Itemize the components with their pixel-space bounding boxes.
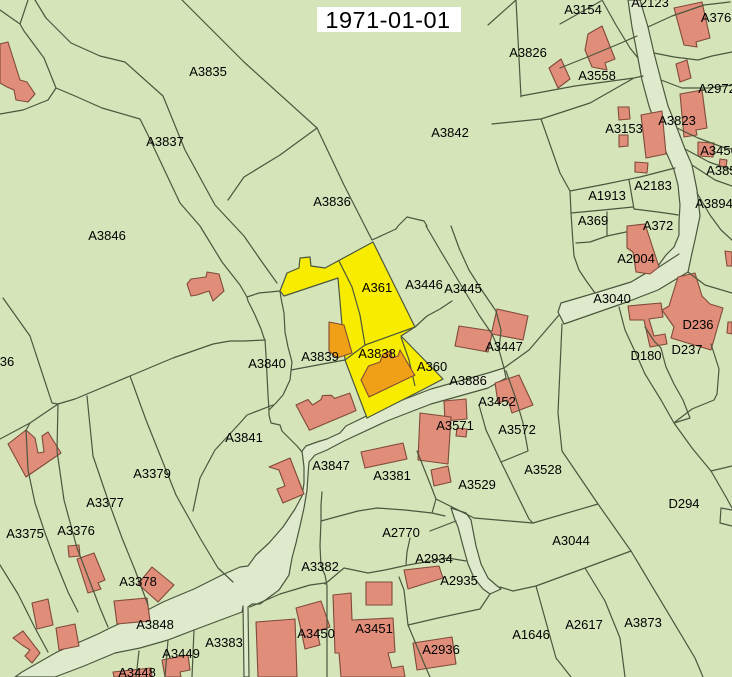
- svg-text:A3044: A3044: [552, 533, 590, 548]
- svg-text:A2936: A2936: [422, 642, 460, 657]
- svg-text:A3377: A3377: [86, 495, 124, 510]
- svg-text:A2123: A2123: [631, 0, 669, 10]
- svg-text:A3571: A3571: [436, 418, 474, 433]
- svg-text:A376: A376: [701, 10, 731, 25]
- svg-text:A3894: A3894: [695, 196, 732, 211]
- svg-text:1971-01-01: 1971-01-01: [325, 7, 450, 33]
- svg-text:A2934: A2934: [415, 551, 453, 566]
- svg-text:A2935: A2935: [440, 573, 478, 588]
- svg-text:A3558: A3558: [578, 68, 616, 83]
- svg-text:A3840: A3840: [248, 356, 286, 371]
- svg-text:D294: D294: [668, 496, 699, 511]
- svg-text:A3040: A3040: [593, 291, 631, 306]
- svg-text:A369: A369: [578, 213, 608, 228]
- svg-text:A3452: A3452: [478, 394, 516, 409]
- svg-text:A3841: A3841: [225, 430, 263, 445]
- svg-text:A3823: A3823: [658, 113, 696, 128]
- svg-text:A3835: A3835: [189, 64, 227, 79]
- svg-text:A3381: A3381: [373, 468, 411, 483]
- svg-text:A372: A372: [643, 218, 673, 233]
- svg-text:A360: A360: [417, 359, 447, 374]
- svg-text:D236: D236: [682, 317, 713, 332]
- svg-text:A3382: A3382: [301, 559, 339, 574]
- svg-text:A3842: A3842: [431, 125, 469, 140]
- svg-text:A3445: A3445: [444, 281, 482, 296]
- svg-text:A3383: A3383: [205, 635, 243, 650]
- svg-text:A3873: A3873: [624, 615, 662, 630]
- svg-text:A3376: A3376: [57, 523, 95, 538]
- svg-text:A1646: A1646: [512, 627, 550, 642]
- svg-text:A3836: A3836: [313, 194, 351, 209]
- svg-text:A3838: A3838: [358, 346, 396, 361]
- svg-text:A3446: A3446: [405, 277, 443, 292]
- svg-text:A2972: A2972: [698, 81, 732, 96]
- svg-text:A3847: A3847: [312, 458, 350, 473]
- svg-text:A2183: A2183: [634, 178, 672, 193]
- svg-text:A2004: A2004: [617, 251, 655, 266]
- svg-text:A3379: A3379: [133, 466, 171, 481]
- svg-text:A3154: A3154: [564, 2, 602, 17]
- svg-text:D237: D237: [671, 342, 702, 357]
- svg-text:A3858: A3858: [706, 163, 732, 178]
- svg-text:A2617: A2617: [565, 617, 603, 632]
- svg-text:A3449: A3449: [162, 646, 200, 661]
- svg-text:A3451: A3451: [355, 621, 393, 636]
- svg-text:A3375: A3375: [6, 526, 44, 541]
- svg-text:A3447: A3447: [485, 339, 523, 354]
- svg-text:A3826: A3826: [509, 45, 547, 60]
- svg-text:A1913: A1913: [588, 188, 626, 203]
- svg-text:A361: A361: [362, 280, 392, 295]
- svg-text:A2770: A2770: [382, 525, 420, 540]
- svg-text:A3846: A3846: [88, 228, 126, 243]
- svg-text:A3848: A3848: [136, 617, 174, 632]
- svg-text:D180: D180: [630, 348, 661, 363]
- svg-text:A3886: A3886: [449, 373, 487, 388]
- svg-text:A3456: A3456: [700, 143, 732, 158]
- svg-text:A3153: A3153: [605, 121, 643, 136]
- svg-text:A3450: A3450: [297, 626, 335, 641]
- svg-text:A3448: A3448: [118, 665, 156, 677]
- svg-text:A336: A336: [0, 354, 14, 369]
- svg-text:A3378: A3378: [119, 574, 157, 589]
- svg-text:A3572: A3572: [498, 422, 536, 437]
- svg-text:A3528: A3528: [524, 462, 562, 477]
- svg-text:A3529: A3529: [458, 477, 496, 492]
- svg-text:A3839: A3839: [301, 349, 339, 364]
- svg-text:A3837: A3837: [146, 134, 184, 149]
